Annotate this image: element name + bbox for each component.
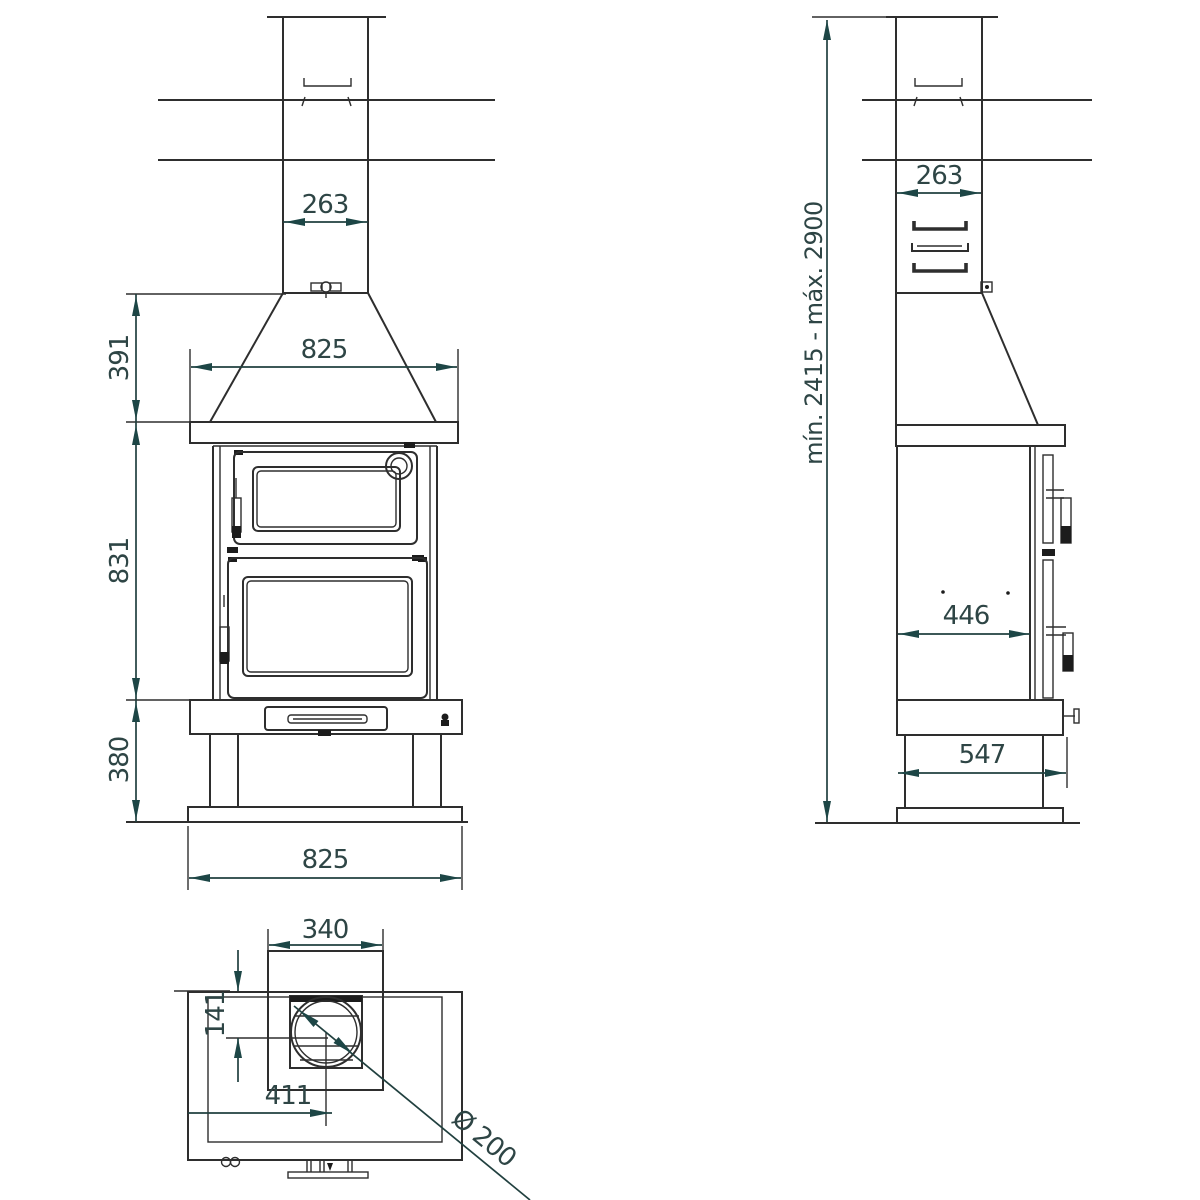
technical-drawing-page: 263 825 391 831 380 825 263 <box>0 0 1200 1200</box>
dim-front-body-height: 831 <box>105 538 135 585</box>
dim-front-chimney-width: 263 <box>302 190 349 220</box>
side-damper-plate <box>915 78 962 86</box>
side-view <box>815 17 1092 823</box>
front-dimensions: 263 825 391 831 380 825 <box>105 190 462 890</box>
dim-top-flue-offset-left: 411 <box>265 1081 312 1111</box>
side-vent-slat-3 <box>914 263 966 271</box>
side-firebox-handle <box>1046 627 1073 671</box>
front-shelf <box>190 700 462 734</box>
side-shelf <box>897 700 1063 735</box>
top-handle-assembly <box>288 1160 368 1178</box>
front-shelf-knob <box>441 714 449 727</box>
side-hood-plate <box>896 425 1065 446</box>
front-damper-handle <box>311 282 341 298</box>
top-inner-outline <box>208 997 442 1142</box>
side-latch-tab <box>1042 549 1055 556</box>
side-hood-slope <box>982 293 1038 425</box>
front-leg-left <box>210 734 238 807</box>
dim-front-base-width: 825 <box>302 845 349 875</box>
front-hood-slope-left <box>210 293 283 422</box>
front-leg-right <box>413 734 441 807</box>
side-firebox-door-edge <box>1043 560 1053 698</box>
front-hood-plate <box>190 422 458 443</box>
dim-front-hood-height: 391 <box>105 335 135 382</box>
front-damper-leg-left <box>302 97 305 106</box>
top-foot-left-1 <box>222 1158 231 1167</box>
side-dimensions: 263 446 547 mín. 2415 - máx. 2900 <box>800 17 1067 822</box>
side-panel-dot-2 <box>1006 591 1010 595</box>
side-oven-door-edge <box>1043 455 1053 543</box>
top-foot-left-2 <box>231 1158 240 1167</box>
side-damper-leg-left <box>914 97 917 106</box>
top-view <box>188 951 462 1178</box>
technical-drawing-canvas: 263 825 391 831 380 825 263 <box>0 0 1200 1200</box>
front-oven-hinge-right <box>404 442 415 448</box>
front-firebox-window-inner <box>247 581 408 672</box>
dim-top-flue-offset-back: 141 <box>201 991 231 1038</box>
front-firebox-window <box>243 577 412 676</box>
side-oven-handle <box>1046 490 1071 543</box>
dim-side-body-depth: 446 <box>943 601 990 631</box>
side-shelf-handle <box>1063 709 1079 723</box>
side-damper-leg-right <box>960 97 963 106</box>
front-oven-window-inner <box>257 471 396 527</box>
side-vent-slat-2 <box>912 243 968 251</box>
dim-top-flue-box-width: 340 <box>302 915 349 945</box>
side-panel-dot-1 <box>941 590 945 594</box>
dim-side-total-height: mín. 2415 - máx. 2900 <box>800 201 828 465</box>
front-latch-left <box>227 547 238 553</box>
side-vent-slat-1 <box>914 221 966 229</box>
front-base <box>188 807 462 822</box>
front-damper-leg-right <box>348 97 351 106</box>
side-base <box>897 808 1063 823</box>
dim-side-base-depth: 547 <box>959 740 1006 770</box>
front-damper-plate <box>304 78 351 86</box>
dim-front-base-height: 380 <box>105 737 135 784</box>
front-view <box>126 17 495 822</box>
front-oven-window <box>253 467 400 531</box>
front-hood-slope-right <box>368 293 436 422</box>
front-drawer-tab <box>318 730 331 736</box>
dim-front-hood-width: 825 <box>301 335 348 365</box>
dim-side-chimney-depth: 263 <box>916 161 963 191</box>
